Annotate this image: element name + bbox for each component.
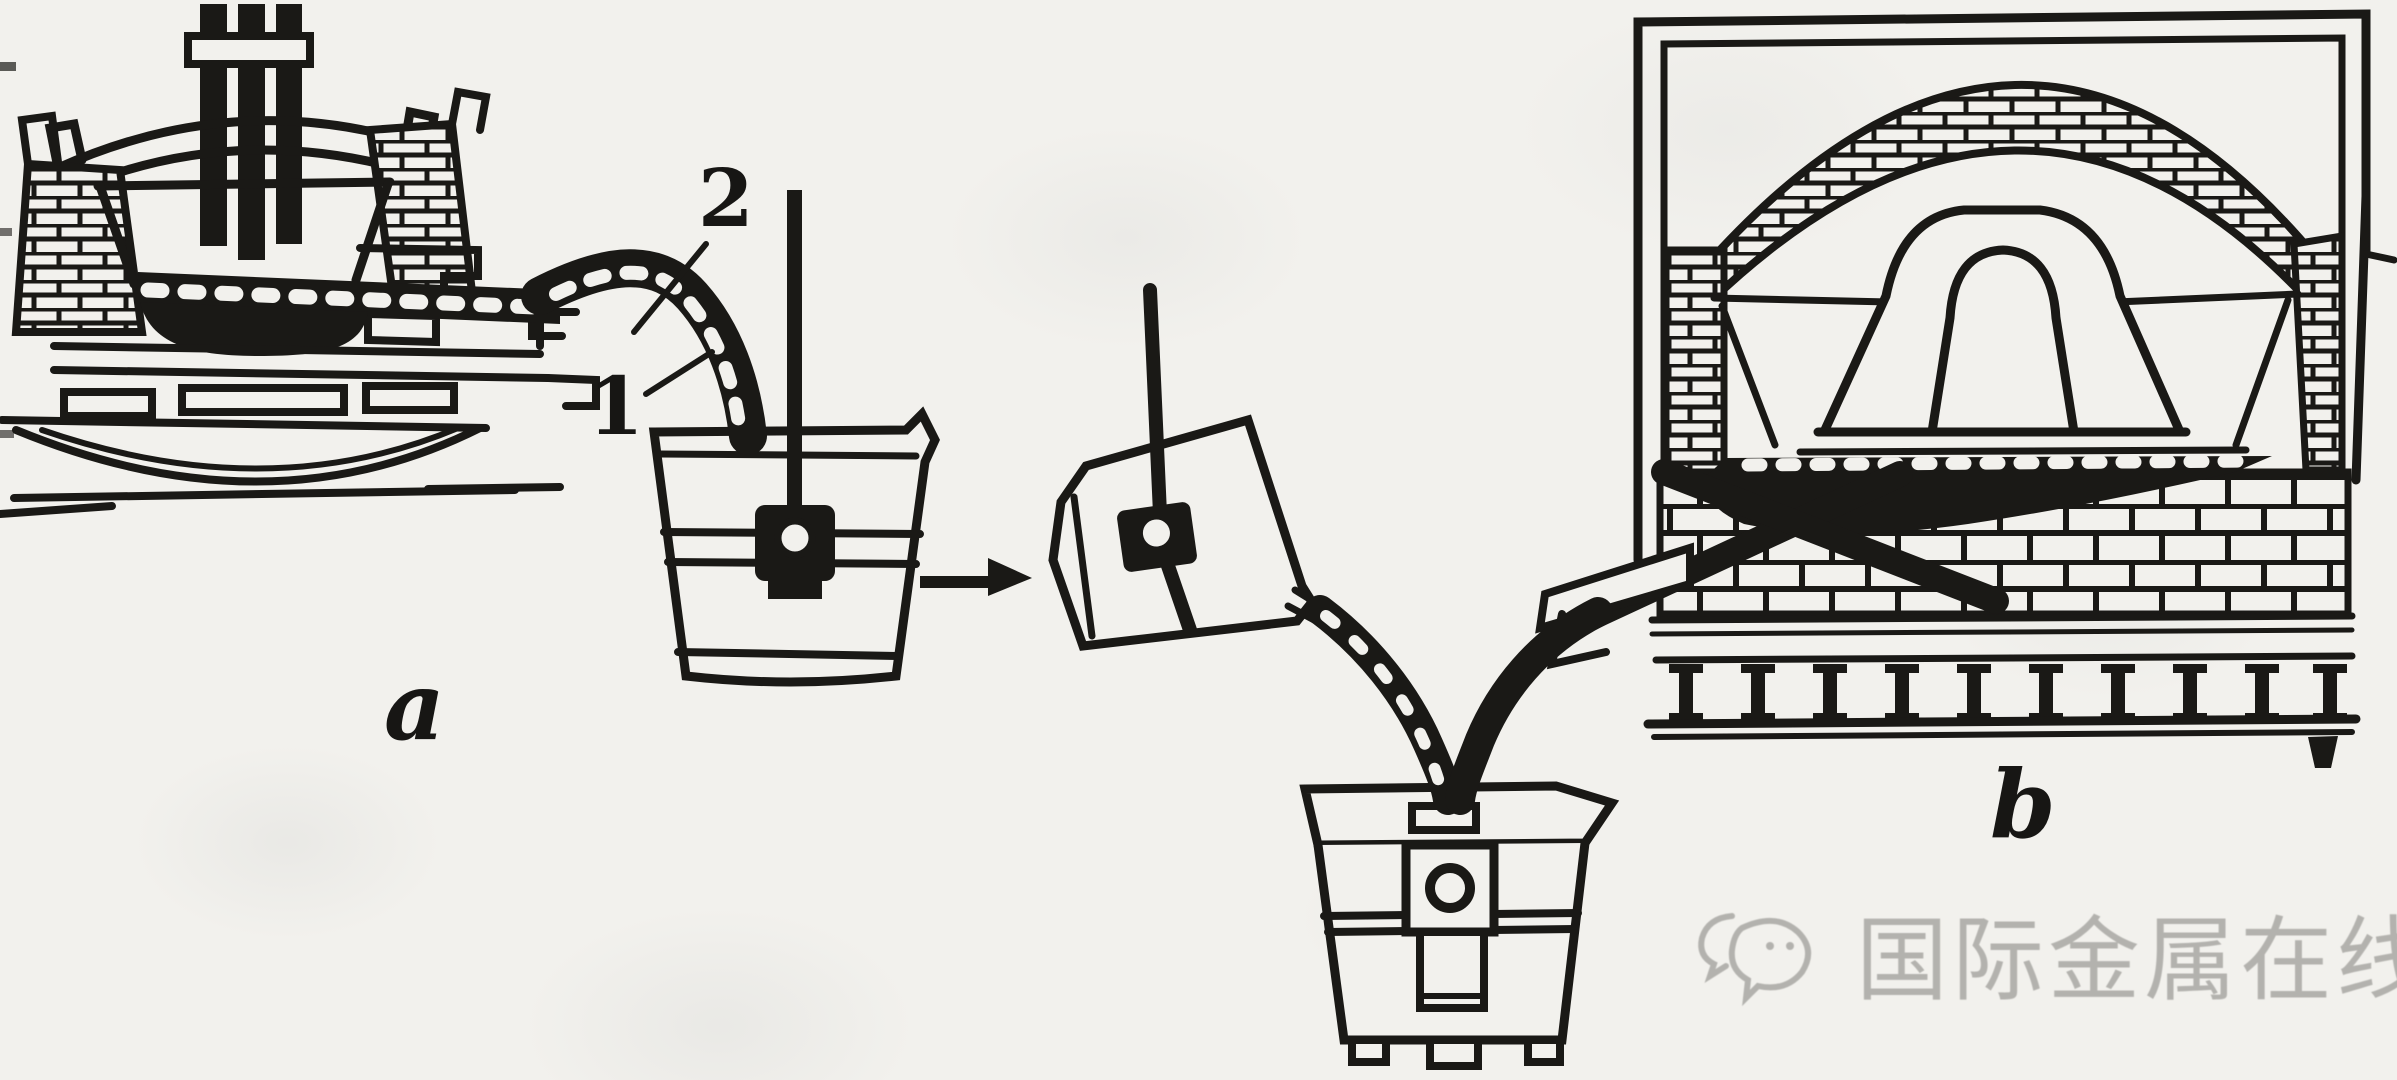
label-a: a xyxy=(384,660,445,754)
furnace-tap-stream xyxy=(1460,612,1598,800)
inner-vault xyxy=(1800,210,2246,452)
tilted-ladle-rod xyxy=(1150,290,1160,514)
electrodes-icon xyxy=(188,4,310,260)
brick-column-right xyxy=(2294,236,2342,470)
holding-furnace xyxy=(1540,14,2394,768)
transfer-arrow-icon xyxy=(920,558,1032,596)
receiving-ladle xyxy=(1305,786,1612,1066)
metallurgy-pouring-diagram xyxy=(0,0,2397,1080)
pouring-streams xyxy=(1320,610,1598,800)
figure-canvas: 2 1 a b 国际金属在线 xyxy=(0,0,2397,1080)
ladle-bail-rod xyxy=(787,190,802,520)
transfer-ladle xyxy=(654,190,935,682)
ladle-pour-stream xyxy=(1320,610,1448,800)
support-columns xyxy=(1669,664,2347,722)
furnace-base xyxy=(1648,616,2356,768)
tilted-pouring-ladle xyxy=(1053,290,1324,646)
receiving-trunnion xyxy=(1430,868,1470,908)
tilted-ladle-trunnion xyxy=(1116,501,1198,573)
electric-arc-furnace xyxy=(0,4,596,514)
scan-specks xyxy=(0,62,16,438)
label-b: b xyxy=(1990,758,2056,852)
melt-bath xyxy=(138,272,560,356)
leader-line-1 xyxy=(646,352,712,394)
label-2: 2 xyxy=(698,158,754,238)
label-1: 1 xyxy=(588,366,644,446)
anchor-foot xyxy=(2308,736,2338,768)
